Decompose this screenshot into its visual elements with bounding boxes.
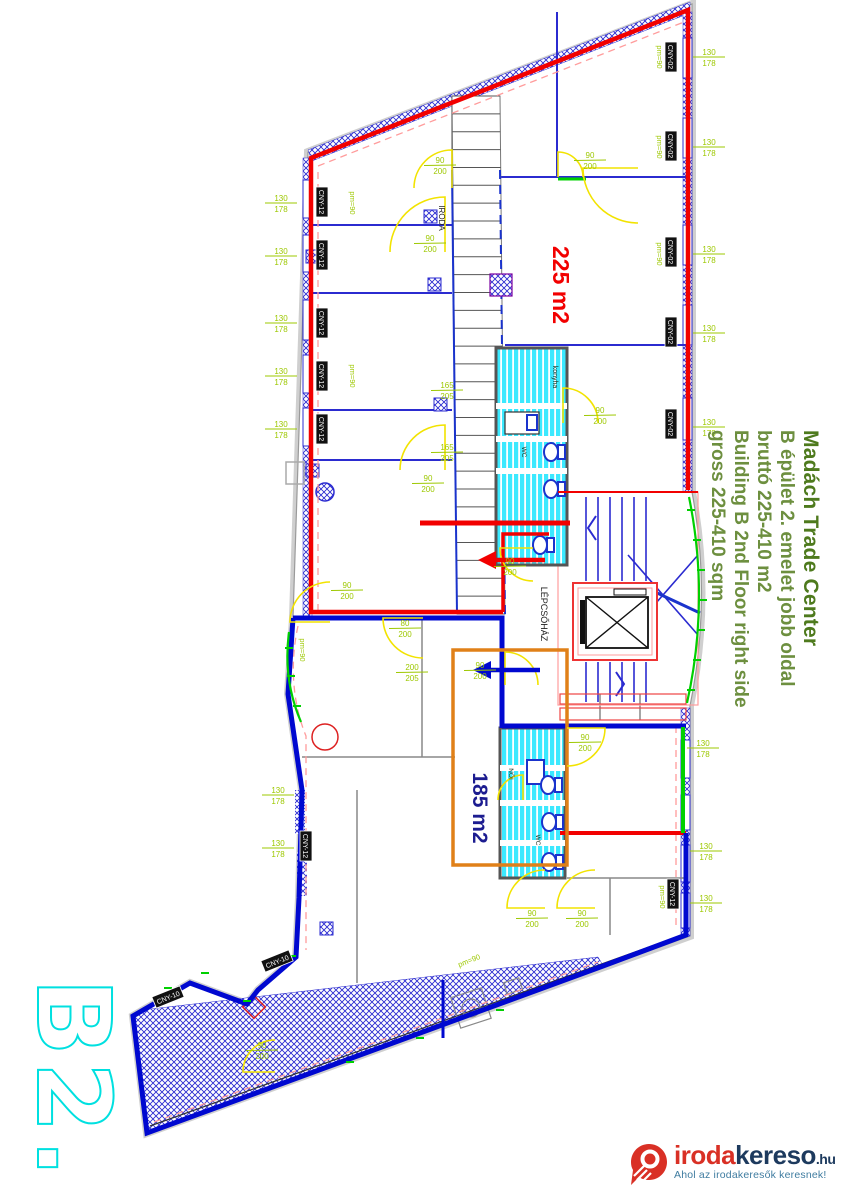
dimension-label: 130178 [265, 314, 297, 334]
parapet-label-text: pm=90 [655, 242, 664, 265]
dimension-label: 130178 [262, 786, 294, 806]
info-panel: Madách Trade Center B épület 2. emelet j… [706, 430, 822, 802]
dim-width: 130 [702, 138, 716, 147]
parapet-label-text: pm=90 [298, 638, 307, 661]
window-code-text: CNY-12 [317, 243, 324, 267]
toilet [533, 536, 554, 554]
dimension-label: 130178 [690, 894, 722, 914]
dim-width: 130 [274, 367, 288, 376]
dim-height: 200 [340, 592, 354, 601]
sheet-watermark: B2. [13, 978, 132, 1183]
window-code-text: CNY-12 [317, 417, 324, 441]
dim-height: 178 [274, 431, 288, 440]
info-line: gross 225-410 sqm [706, 430, 729, 802]
dim-width: 130 [274, 194, 288, 203]
dim-height: 205 [405, 674, 419, 683]
dim-height: 178 [702, 256, 716, 265]
info-title: Madách Trade Center [798, 430, 822, 802]
dim-width: 90 [596, 406, 605, 415]
dim-width: 130 [274, 420, 288, 429]
dimension-label: 130178 [265, 420, 297, 440]
dim-width: 90 [578, 909, 587, 918]
dim-width: 130 [699, 894, 713, 903]
dim-height: 200 [593, 417, 607, 426]
dim-width: 200 [405, 663, 419, 672]
info-line: B épület 2. emelet jobb oldal [775, 430, 798, 802]
logo-tagline: Ahol az irodakeresők keresnek! [674, 1170, 835, 1181]
wc-label: WC [534, 835, 541, 846]
dim-width: 80 [401, 619, 410, 628]
toilet [541, 776, 562, 794]
dim-height: 200 [421, 485, 435, 494]
window-code-text: CNY-02 [666, 320, 673, 344]
parapet-label: pm=90 [655, 45, 664, 68]
dim-width: 130 [702, 245, 716, 254]
dim-height: 178 [274, 205, 288, 214]
stairwell-label: LÉPCSŐHÁZ [539, 587, 549, 642]
dim-width: 130 [271, 786, 285, 795]
window-code-text: CNY-12 [317, 190, 324, 214]
dim-height: 205 [440, 392, 454, 401]
dim-height: 178 [274, 378, 288, 387]
toilet [542, 853, 563, 871]
office-label: IRODA [437, 205, 446, 231]
logo-pin-icon [628, 1142, 670, 1188]
window-code: CNY-02 [665, 131, 677, 161]
window-code: CNY-12 [667, 879, 679, 909]
dim-height: 178 [271, 850, 285, 859]
dim-height: 178 [702, 149, 716, 158]
info-line: Building B 2nd Floor right side [729, 430, 752, 802]
area1-label: 225 m2 [548, 246, 574, 324]
window-code-text: CNY-12 [301, 834, 308, 858]
logo: irodakereso.hu Ahol az irodakeresők kere… [628, 1142, 842, 1191]
dimension-label: 130178 [693, 245, 725, 265]
logo-word-kereso: kereso [735, 1140, 816, 1170]
dimension-label: 130178 [693, 48, 725, 68]
dim-height: 200 [433, 167, 447, 176]
parapet-label-text: pm=90 [348, 191, 357, 214]
elevator [573, 583, 657, 660]
window-code: CNY-12 [316, 187, 328, 217]
dim-height: 178 [699, 905, 713, 914]
window-code: CNY-02 [665, 237, 677, 267]
parapet-label: pm=90 [348, 191, 357, 214]
dimension-label: 130178 [265, 247, 297, 267]
logo-word-iroda: iroda [674, 1140, 735, 1170]
dim-height: 200 [525, 920, 539, 929]
dimension-label: 130178 [265, 367, 297, 387]
window-code: CNY-12 [300, 831, 312, 861]
parapet-label: pm=90 [655, 135, 664, 158]
dim-width: 130 [274, 247, 288, 256]
window-code-text: CNY-02 [666, 240, 673, 264]
parapet-label: pm=90 [348, 364, 357, 387]
window-code: CNY-12 [316, 308, 328, 338]
dim-width: 130 [699, 842, 713, 851]
dimension-label: 130178 [265, 194, 297, 214]
area2-label: 185 m2 [468, 772, 491, 843]
dim-height: 200 [423, 245, 437, 254]
women-label: NŐI [507, 768, 516, 780]
dim-width: 130 [702, 324, 716, 333]
dim-width: 130 [702, 418, 716, 427]
dim-width: 165 [440, 381, 454, 390]
dim-width: 90 [506, 557, 515, 566]
dimension-label: 130178 [690, 842, 722, 862]
round-column [316, 483, 334, 501]
dimension-label: 130178 [693, 324, 725, 344]
dim-height: 178 [274, 325, 288, 334]
parapet-label: pm=90 [298, 638, 307, 661]
window-code-text: CNY-02 [666, 412, 673, 436]
window-code: CNY-02 [665, 409, 677, 439]
dim-height: 178 [274, 258, 288, 267]
kitchen-label: konyha [551, 366, 558, 389]
info-line: bruttó 225-410 m2 [752, 430, 775, 802]
dim-height: 200 [503, 568, 517, 577]
parapet-label-text: pm=90 [655, 135, 664, 158]
dim-width: 165 [440, 443, 454, 452]
dimension-label: 130178 [262, 839, 294, 859]
parapet-label-text: pm=90 [348, 364, 357, 387]
window-code-text: CNY-12 [317, 364, 324, 388]
dim-width: 90 [581, 733, 590, 742]
dim-width: 130 [271, 839, 285, 848]
dim-height: 200 [473, 672, 487, 681]
window-code: CNY-02 [665, 42, 677, 72]
window-code: CNY-02 [665, 317, 677, 347]
parapet-label: pm=90 [655, 242, 664, 265]
dim-width: 90 [426, 234, 435, 243]
logo-tld: .hu [816, 1151, 836, 1167]
dim-width: 90 [424, 474, 433, 483]
dim-width: 130 [702, 48, 716, 57]
window-code: CNY-12 [316, 361, 328, 391]
parapet-label-text: pm=90 [658, 885, 667, 908]
dim-height: 200 [575, 920, 589, 929]
window-code-text: CNY-02 [666, 45, 673, 69]
dim-width: 90 [528, 909, 537, 918]
dim-height: 200 [255, 1052, 269, 1061]
dim-width: 130 [274, 314, 288, 323]
window-code: CNY-12 [316, 240, 328, 270]
dim-width: 90 [436, 156, 445, 165]
dim-width: 90 [343, 581, 352, 590]
parapet-label: pm=90 [658, 885, 667, 908]
window-code-text: CNY-12 [317, 311, 324, 335]
window-code-text: CNY-02 [666, 134, 673, 158]
toilet [544, 443, 565, 461]
window-code-text: CNY-12 [668, 882, 675, 906]
dim-height: 178 [271, 797, 285, 806]
dim-height: 200 [578, 744, 592, 753]
dim-height: 178 [702, 59, 716, 68]
dim-width: 90 [476, 661, 485, 670]
dimension-label: 130178 [693, 138, 725, 158]
logo-wordmark: irodakereso.hu [674, 1142, 835, 1168]
dim-height: 178 [702, 335, 716, 344]
wc-label: WC [520, 447, 527, 458]
toilet [544, 480, 565, 498]
dim-height: 205 [440, 454, 454, 463]
parapet-label-text: pm=90 [655, 45, 664, 68]
dim-width: 90 [258, 1041, 267, 1050]
dim-height: 200 [583, 162, 597, 171]
toilet [542, 813, 563, 831]
dim-width: 90 [586, 151, 595, 160]
window-code: CNY-12 [316, 414, 328, 444]
dim-height: 200 [398, 630, 412, 639]
dim-height: 178 [699, 853, 713, 862]
bathroom-block-lower [500, 728, 565, 878]
